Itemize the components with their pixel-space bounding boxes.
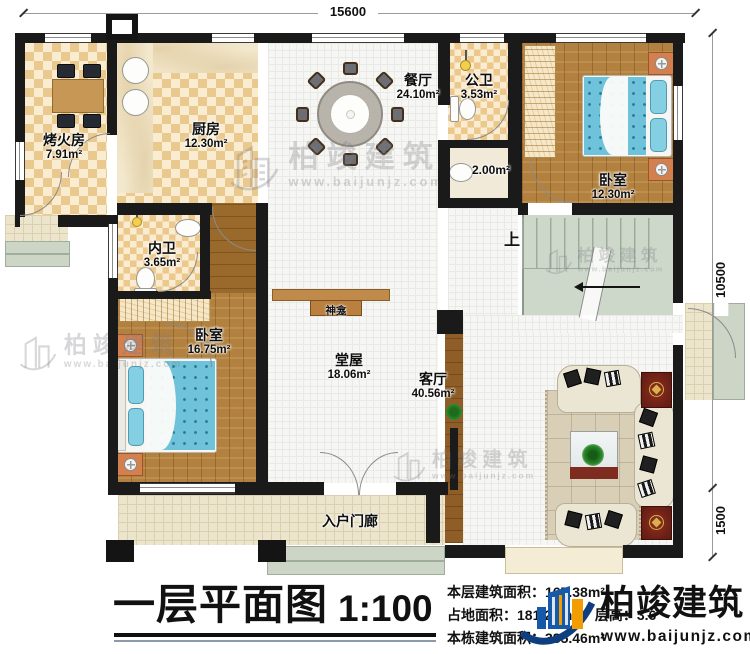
wall-bath-bedroom xyxy=(508,33,522,208)
stairs-up-label: 上 xyxy=(504,226,520,250)
bed-sheet-fold xyxy=(600,77,628,155)
coffee-table-plant xyxy=(582,444,604,466)
dimension-right-upper-value: 10500 xyxy=(714,244,728,316)
fire-room-chair xyxy=(57,64,75,78)
window xyxy=(212,33,254,43)
room-label-bedroom-left: 卧室 16.75m² xyxy=(178,328,240,357)
room-label-bedroom-top: 卧室 12.30m² xyxy=(580,173,646,202)
watermark-name: 柏竣建筑 xyxy=(64,333,182,356)
bed-sheet-fold xyxy=(146,361,176,450)
room-label-fire-room: 烤火房 7.91m² xyxy=(28,133,100,162)
watermark: 柏竣建筑 www.baijunjz.com xyxy=(228,140,444,192)
shrine-label: 神龛 xyxy=(326,305,347,317)
porch-label: 入户门廊 xyxy=(310,514,390,530)
bed-pillow xyxy=(650,80,667,114)
room-label-living-room: 客厅 40.56m² xyxy=(404,372,462,401)
sheet-title: 一层平面图 xyxy=(113,584,328,626)
watermark: 柏竣建筑 www.baijunjz.com xyxy=(392,448,535,482)
window xyxy=(673,86,683,140)
wall-bedroom-top-bottom-b xyxy=(572,203,683,215)
wall-hall-bottom-right xyxy=(396,482,448,495)
fire-room-table xyxy=(52,79,104,113)
wall-right-lower xyxy=(673,345,683,558)
wall-living-bottom-a xyxy=(445,545,505,558)
wall-inner-bath-right xyxy=(200,215,210,295)
porch-column xyxy=(258,540,286,562)
nightstand-knob xyxy=(655,163,668,176)
room-label-inner-bath: 内卫 3.65m² xyxy=(134,241,190,270)
brand-name: 柏竣建筑 xyxy=(600,586,744,621)
bed-headboard xyxy=(117,360,126,451)
wardrobe xyxy=(524,45,556,158)
kitchen-basin-1 xyxy=(122,57,149,84)
sofa-pillow xyxy=(604,370,621,387)
room-label-kitchen: 厨房 12.30m² xyxy=(176,122,236,151)
dining-chair xyxy=(296,107,309,122)
watermark-name: 柏竣建筑 xyxy=(432,449,535,469)
sheet-scale: 1:100 xyxy=(338,590,433,627)
wall-hall-bottom-left xyxy=(268,482,324,495)
fire-room-chair xyxy=(83,64,101,78)
watermark-url: www.baijunjz.com xyxy=(288,177,444,190)
brand-website: www.baijunjz.com xyxy=(601,629,750,645)
front-door-mat xyxy=(505,547,623,574)
nightstand-knob xyxy=(124,458,137,471)
sofa-pillow xyxy=(585,513,602,530)
dimension-tick xyxy=(708,552,717,561)
room-label-washroom: 2.00m² xyxy=(468,164,514,177)
room-label-main-hall: 堂屋 18.06m² xyxy=(318,353,380,382)
wall-fire-room-bottom-a xyxy=(15,215,20,227)
title-underline xyxy=(114,633,436,637)
inner-bath-sink xyxy=(175,219,201,237)
window xyxy=(140,483,235,494)
watermark: 柏竣建筑 www.baijunjz.com xyxy=(544,246,664,275)
watermark-logo-icon xyxy=(18,332,57,371)
dimension-top-value: 15600 xyxy=(318,5,378,19)
title-underline-2 xyxy=(114,640,436,642)
room-label-public-bath: 公卫 3.53m² xyxy=(453,73,505,102)
coffee-table-edge xyxy=(570,467,618,479)
bed-pillow xyxy=(128,408,144,446)
watermark-name: 柏竣建筑 xyxy=(577,247,663,264)
room-label-dining: 餐厅 24.10m² xyxy=(388,73,448,102)
front-step-1 xyxy=(267,546,445,561)
wall-fire-room-bottom-b xyxy=(58,215,111,227)
wall-living-bottom-b xyxy=(623,545,683,558)
watermark-logo-icon xyxy=(544,246,573,275)
fire-room-chair xyxy=(83,114,101,128)
living-room-floor-upper xyxy=(518,315,683,333)
floor-plan-sheet: 上 神龛 xyxy=(0,0,750,654)
dimension-right-lower-value: 1500 xyxy=(714,496,728,546)
kitchen-basin-2 xyxy=(122,89,149,116)
wall-bath-washroom xyxy=(448,140,510,148)
bath-light xyxy=(460,60,471,71)
brand-logo-icon xyxy=(518,581,598,651)
wall-washroom-bottom xyxy=(438,198,512,208)
watermark-name: 柏竣建筑 xyxy=(288,142,444,172)
window xyxy=(108,224,118,278)
nightstand-knob xyxy=(655,57,668,70)
watermark-url: www.baijunjz.com xyxy=(432,472,535,481)
sofa-pillow xyxy=(584,368,602,386)
chimney-flue xyxy=(106,14,138,40)
wall-middle-vertical xyxy=(256,203,268,495)
wall-dining-bath-b xyxy=(438,140,450,200)
pillar xyxy=(437,310,463,334)
entry-porch-floor xyxy=(118,495,445,545)
window xyxy=(460,33,504,43)
watermark: 柏竣建筑 www.baijunjz.com xyxy=(18,332,182,371)
shrine-cabinet: 神龛 xyxy=(310,300,362,316)
window xyxy=(312,33,404,43)
stair-arrow-head xyxy=(569,282,583,292)
watermark-url: www.baijunjz.com xyxy=(577,266,663,273)
window xyxy=(556,33,646,43)
bed-pillow xyxy=(650,118,667,152)
stair-direction-arrow xyxy=(578,286,640,288)
wall-inner-bath-bottom xyxy=(117,291,211,299)
fire-room-chair xyxy=(57,114,75,128)
left-porch-step-2 xyxy=(5,254,70,267)
wardrobe xyxy=(119,295,211,322)
sofa-pillow xyxy=(638,432,656,450)
inner-bath-light xyxy=(132,217,142,227)
dining-chair xyxy=(343,62,358,75)
front-step-2 xyxy=(267,561,445,575)
wall-right-upper xyxy=(673,33,683,303)
bed-pillow xyxy=(128,366,144,404)
wall-kitchen-bottom xyxy=(117,203,212,215)
wall-bedroom-top-bottom-a xyxy=(518,203,528,215)
dining-table-hub xyxy=(346,110,355,119)
dimension-tick xyxy=(691,8,700,17)
left-porch-step-1 xyxy=(5,241,70,254)
watermark-url: www.baijunjz.com xyxy=(64,360,182,370)
window xyxy=(45,33,91,43)
dining-chair xyxy=(391,107,404,122)
porch-column xyxy=(106,540,134,562)
tv-wall-plant xyxy=(446,404,462,420)
wall-fire-kitchen-divider xyxy=(107,43,117,135)
